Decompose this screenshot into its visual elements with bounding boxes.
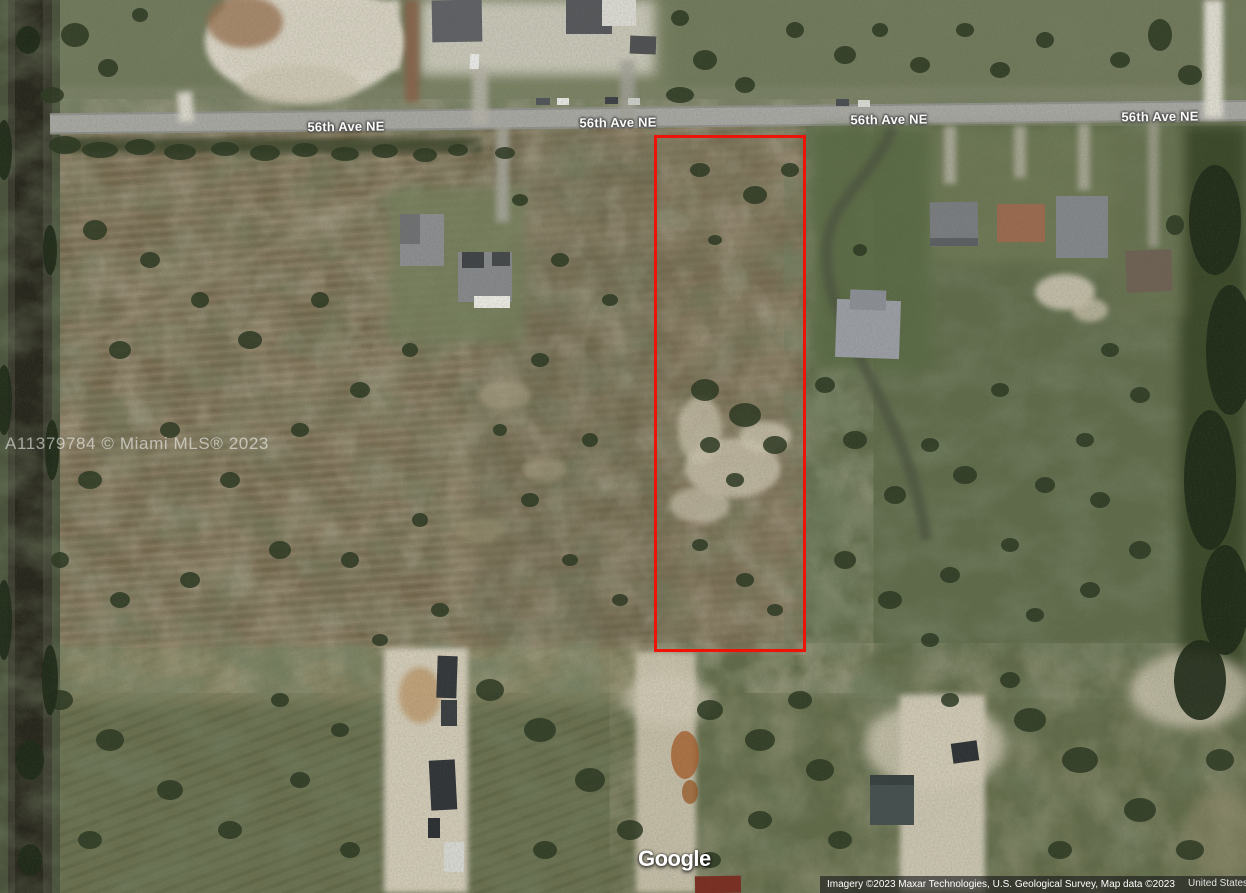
- country-label: United States: [1188, 878, 1246, 889]
- google-logo[interactable]: Google: [638, 846, 711, 872]
- satellite-map-canvas[interactable]: 56th Ave NE 56th Ave NE 56th Ave NE 56th…: [0, 0, 1246, 893]
- attribution-bar: Imagery ©2023 Maxar Technologies, U.S. G…: [820, 876, 1246, 893]
- imagery-credits: Imagery ©2023 Maxar Technologies, U.S. G…: [820, 879, 1175, 890]
- mls-watermark: A11379784 © Miami MLS® 2023: [5, 434, 269, 454]
